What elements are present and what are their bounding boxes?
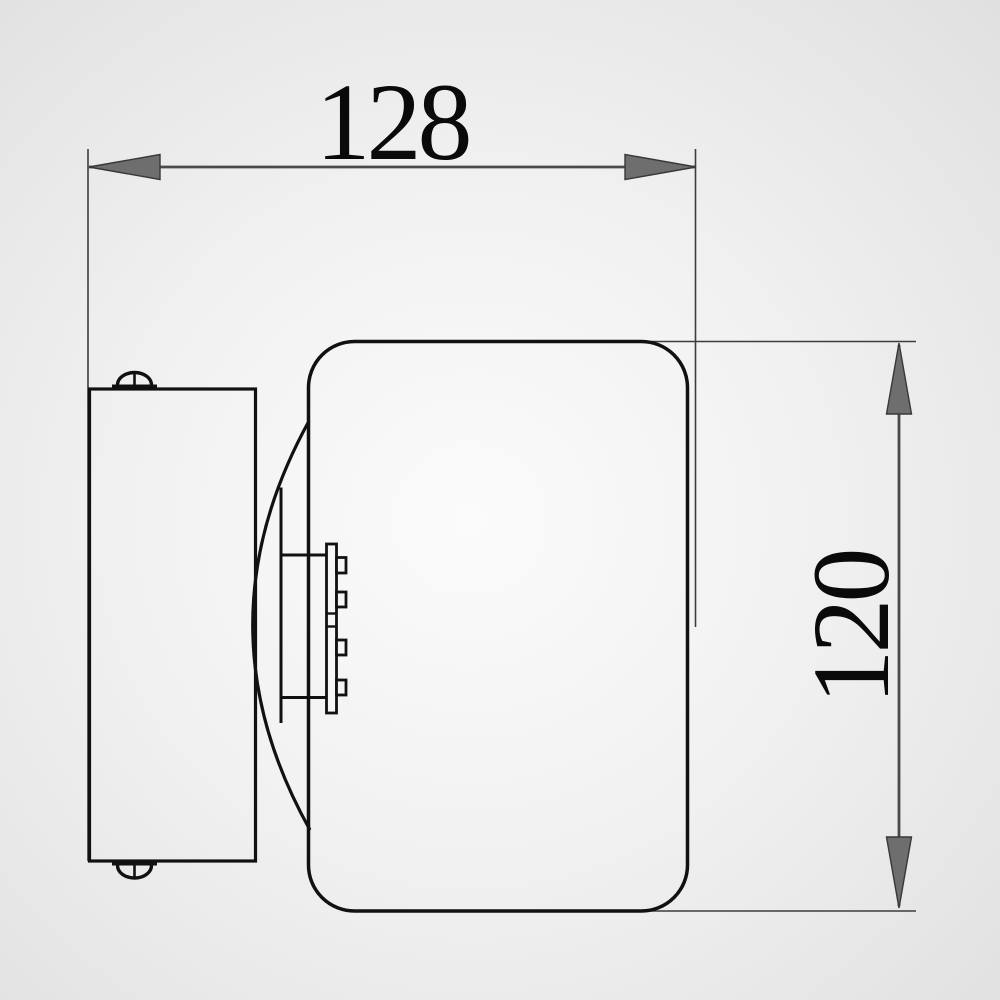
mounting-plate bbox=[90, 389, 256, 861]
bracket-tab-2 bbox=[337, 592, 347, 607]
screw-base bbox=[112, 385, 157, 390]
height-dimension: 120 bbox=[645, 342, 916, 912]
width-dimension-label: 128 bbox=[316, 61, 469, 183]
width-dimension: 128 bbox=[88, 61, 696, 861]
arrowhead-right-icon bbox=[625, 155, 696, 180]
arrowhead-left-icon bbox=[89, 155, 160, 180]
lamp-shade-outline bbox=[309, 342, 688, 912]
screw-base bbox=[112, 861, 157, 866]
bracket-tab-4 bbox=[337, 680, 347, 695]
arrowhead-down-icon bbox=[887, 837, 912, 908]
bracket-bar bbox=[327, 544, 337, 713]
bracket-tab-3 bbox=[337, 640, 347, 655]
bracket-tab-1 bbox=[337, 558, 347, 574]
technical-drawing-canvas: 128 120 bbox=[0, 0, 1000, 1000]
wall-lamp-dimension-drawing: 128 120 bbox=[0, 0, 1000, 1000]
height-dimension-label: 120 bbox=[790, 552, 912, 705]
arrowhead-up-icon bbox=[887, 343, 912, 414]
top-screw bbox=[112, 373, 157, 390]
bottom-screw bbox=[112, 861, 157, 878]
lamp-holder-bracket bbox=[281, 488, 346, 724]
lamp-outline bbox=[90, 342, 688, 912]
